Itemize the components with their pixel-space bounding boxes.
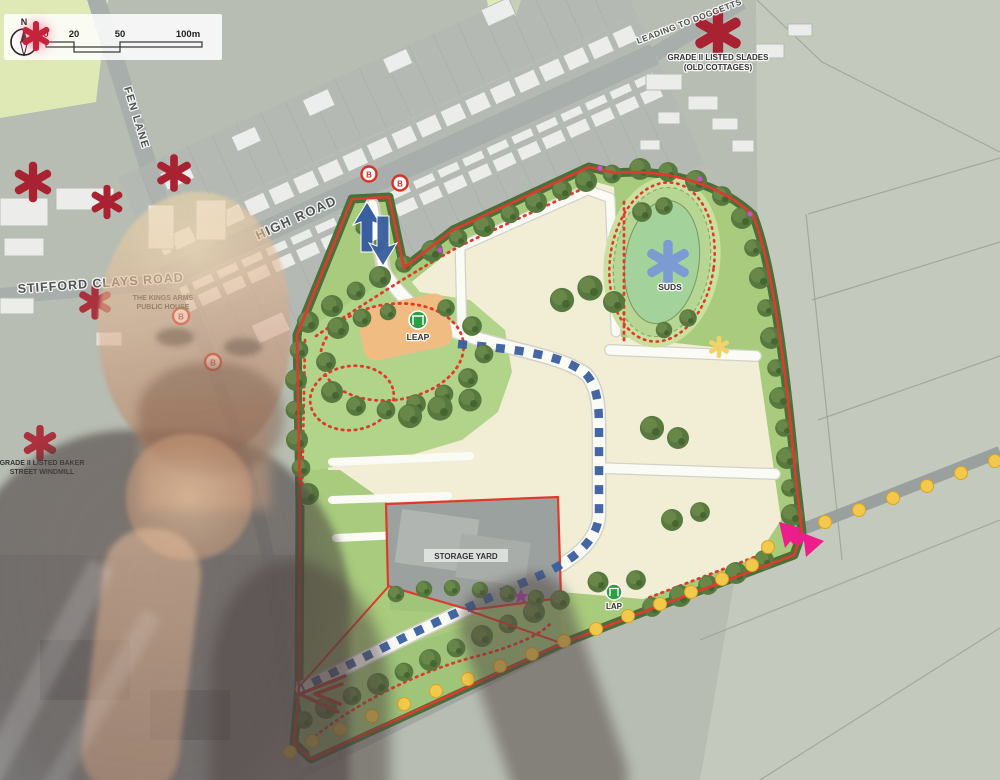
svg-text:50: 50	[115, 29, 126, 40]
composite-image: { "colors": { "site-boundary-red": "#e03…	[0, 0, 1000, 780]
svg-text:100m: 100m	[176, 29, 200, 40]
leap-icon	[409, 311, 427, 329]
north-label: N	[21, 17, 28, 27]
svg-text:(OLD COTTAGES): (OLD COTTAGES)	[684, 63, 753, 72]
bus-stop-icon: B	[362, 167, 377, 182]
svg-text:GRADE II LISTED SLADES: GRADE II LISTED SLADES	[668, 53, 770, 62]
svg-text:STREET WINDMILL: STREET WINDMILL	[10, 469, 75, 476]
svg-text:20: 20	[69, 29, 80, 40]
svg-text:B: B	[397, 180, 403, 189]
masterplan-map: STORAGE YARD	[0, 0, 1000, 780]
svg-text:THE KINGS ARMS: THE KINGS ARMS	[133, 295, 194, 302]
svg-text:B: B	[366, 171, 372, 180]
svg-text:B: B	[210, 359, 216, 368]
svg-text:PUBLIC HOUSE: PUBLIC HOUSE	[137, 304, 190, 311]
storage-yard-label: STORAGE YARD	[434, 552, 498, 561]
svg-text:B: B	[178, 313, 184, 322]
suds-label: SUDS	[658, 282, 682, 292]
bus-stop-icon: B	[393, 176, 408, 191]
lap-icon	[606, 584, 622, 600]
svg-text:GRADE II LISTED BAKER: GRADE II LISTED BAKER	[0, 460, 84, 467]
svg-text:0: 0	[43, 29, 48, 40]
leap-label: LEAP	[407, 332, 430, 342]
lap-label: LAP	[606, 602, 623, 611]
bus-stop-icon: B	[205, 354, 221, 370]
scale-bar: N 0 20 50 100m	[4, 14, 222, 60]
